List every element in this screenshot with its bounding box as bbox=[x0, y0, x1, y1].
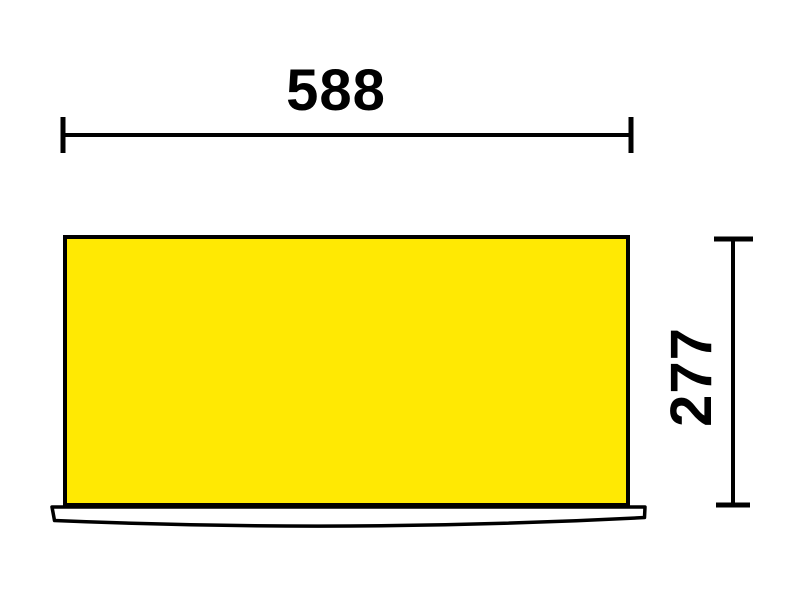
base-strip bbox=[52, 507, 645, 526]
height-dimension-label: 277 bbox=[659, 327, 724, 427]
drawing-canvas: 588 277 bbox=[0, 0, 800, 599]
technical-drawing: 588 277 bbox=[0, 0, 800, 599]
width-dimension-label: 588 bbox=[286, 58, 386, 123]
panel-rect bbox=[65, 237, 628, 505]
